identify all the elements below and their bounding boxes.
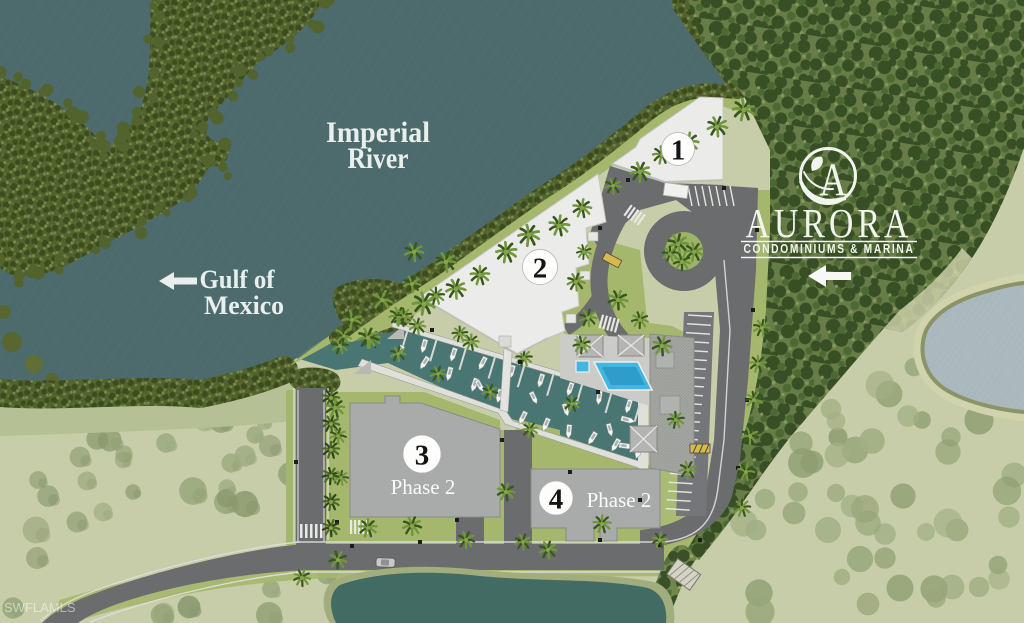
svg-text:1: 1 <box>671 135 686 167</box>
svg-text:Phase 2: Phase 2 <box>587 488 652 512</box>
svg-text:2: 2 <box>533 253 548 285</box>
svg-text:Mexico: Mexico <box>204 291 284 320</box>
svg-text:River: River <box>348 142 409 175</box>
svg-text:3: 3 <box>415 440 430 472</box>
svg-text:Gulf of: Gulf of <box>200 265 275 294</box>
svg-text:4: 4 <box>549 484 564 516</box>
svg-text:SWFLAMLS: SWFLAMLS <box>4 600 76 615</box>
svg-text:AURORA: AURORA <box>746 200 913 246</box>
svg-text:CONDOMINIUMS & MARINA: CONDOMINIUMS & MARINA <box>744 242 915 256</box>
svg-text:Phase 2: Phase 2 <box>391 475 456 499</box>
